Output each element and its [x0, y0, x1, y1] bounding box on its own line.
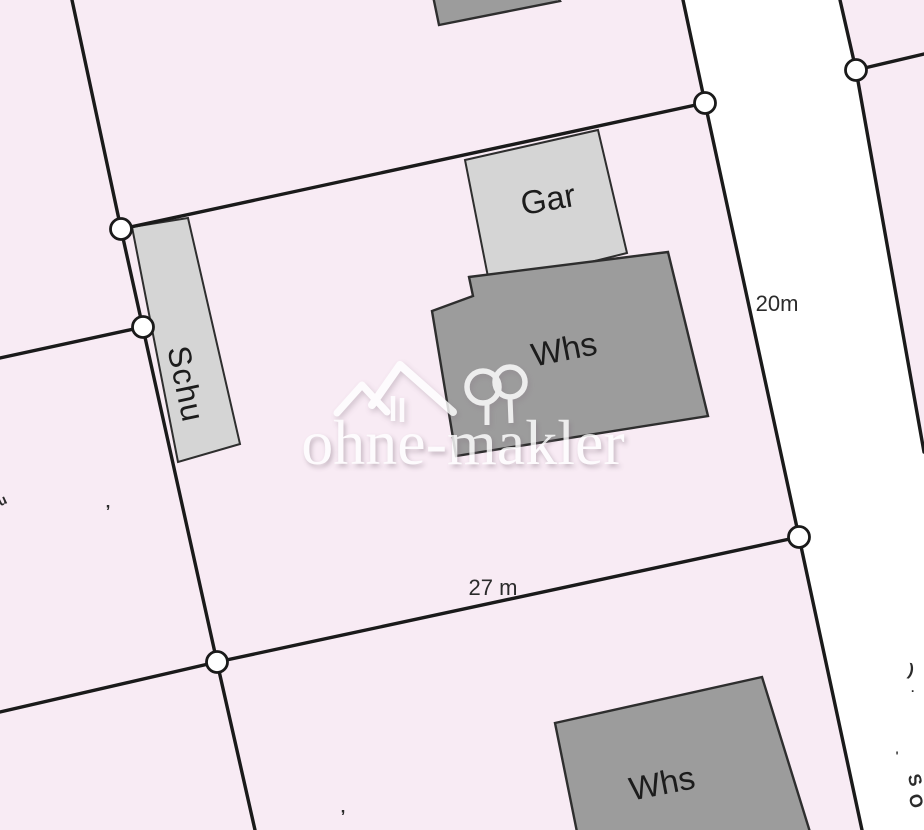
building-north-partial [433, 0, 560, 25]
site-plan: Gar Whs Schu Whs 20m 27 m u , , ) · ' S … [0, 0, 924, 830]
plan-geometry [0, 0, 924, 830]
boundary-point [789, 527, 810, 548]
boundary-point [846, 60, 867, 81]
building-schu [132, 218, 240, 462]
boundary-line-south [0, 537, 799, 712]
edge-text-fragment: ' [896, 750, 899, 762]
edge-text-fragment: · [911, 685, 915, 697]
edge-text-fragment: , [106, 494, 111, 511]
boundary-line-west-branch [0, 327, 143, 358]
building-label-gar: Gar [518, 178, 578, 220]
boundary-point [207, 652, 228, 673]
boundary-point [695, 93, 716, 114]
edge-text-fragment: , [341, 799, 346, 816]
dimension-label-20m: 20m [756, 293, 799, 315]
building-whs-south [555, 677, 810, 830]
boundary-point [111, 219, 132, 240]
dimension-label-27m: 27 m [469, 577, 518, 599]
boundary-point [133, 317, 154, 338]
